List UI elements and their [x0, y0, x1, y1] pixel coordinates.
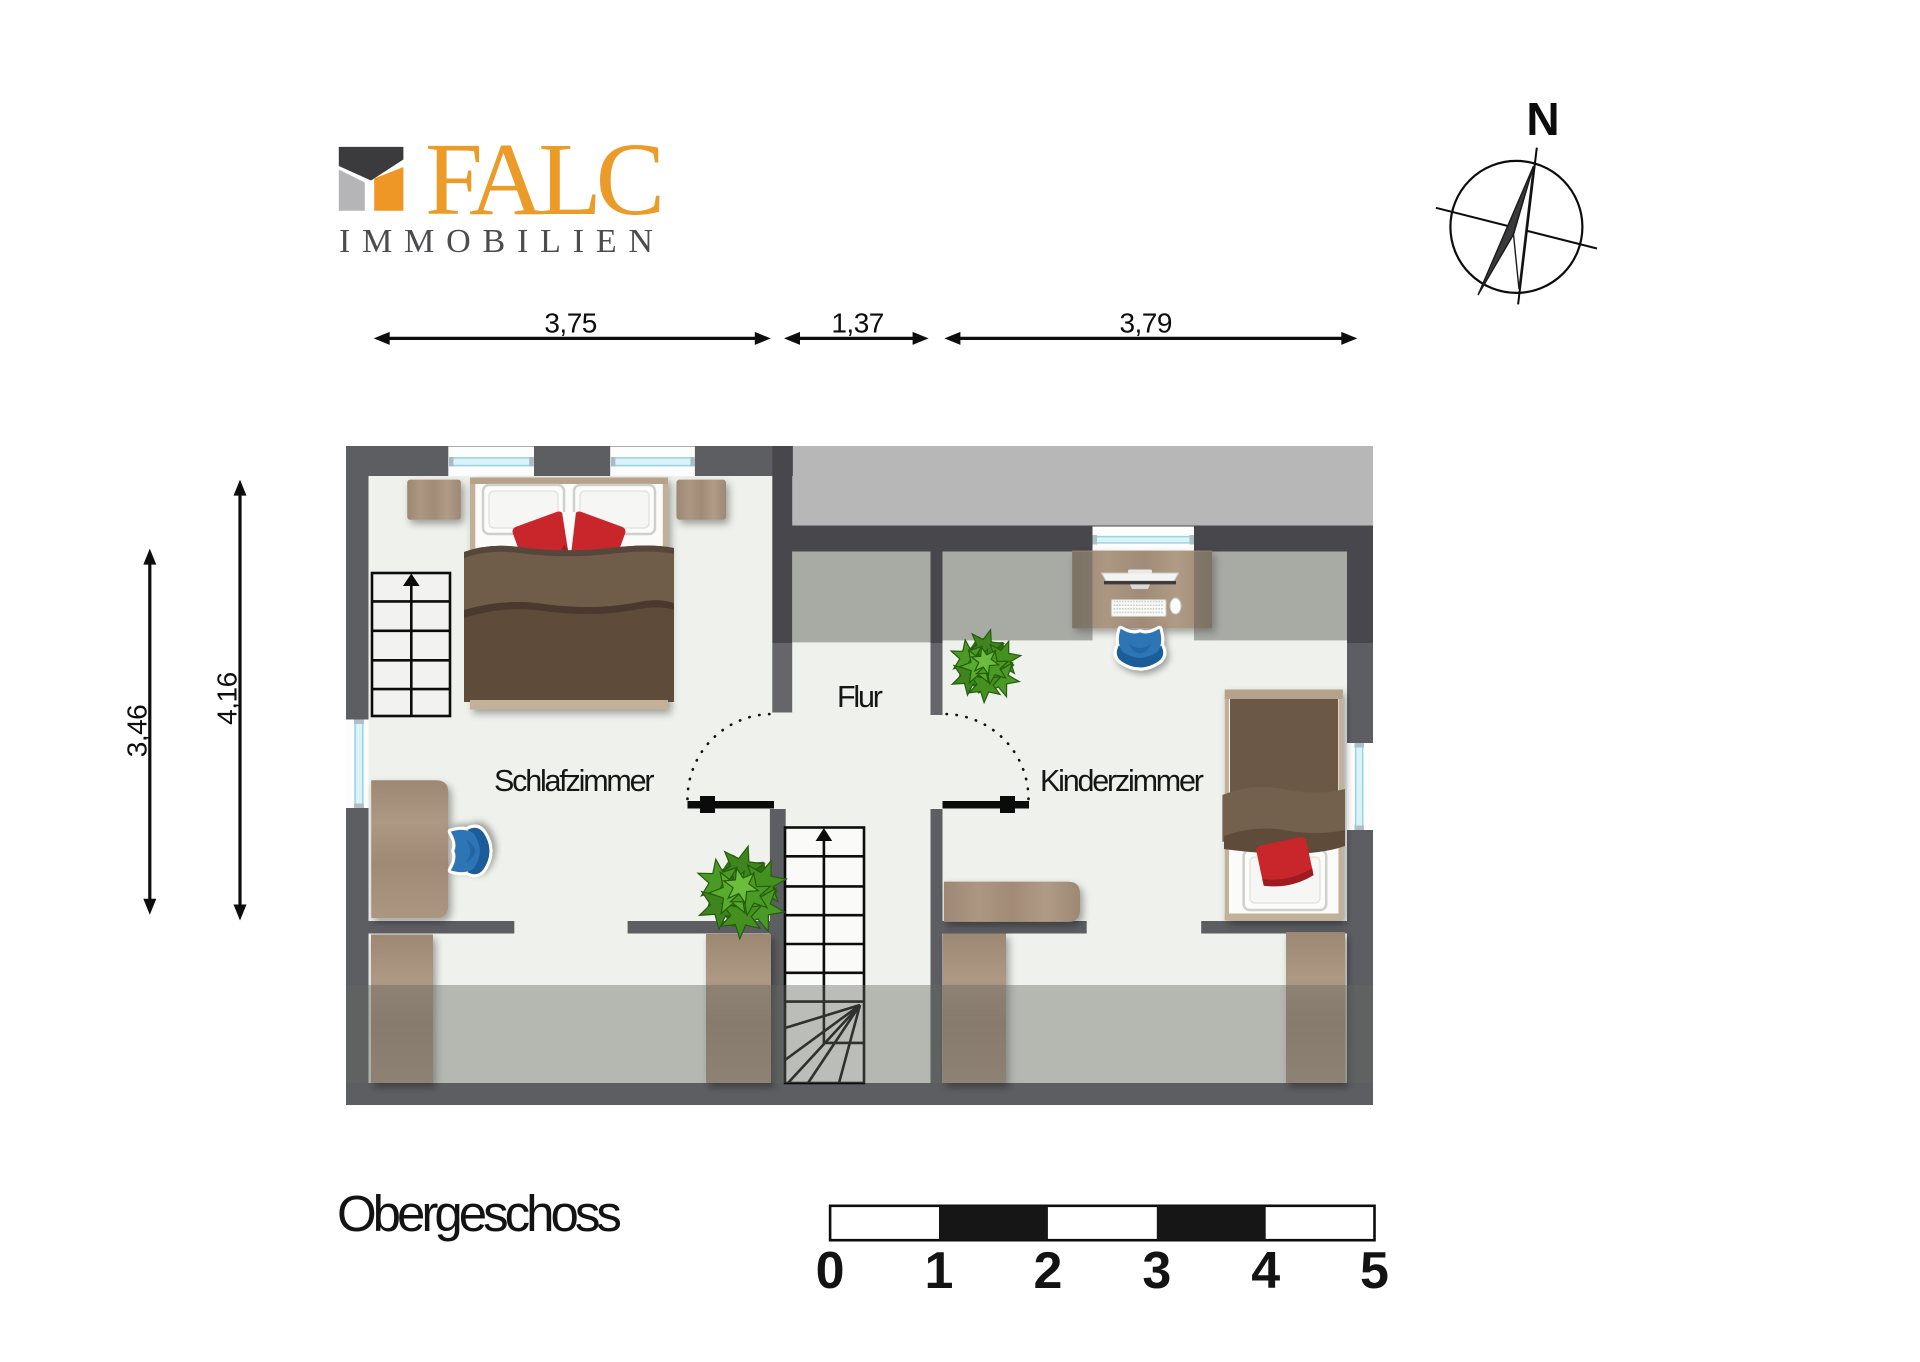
svg-text:4: 4: [1251, 1242, 1280, 1300]
svg-text:1: 1: [925, 1242, 954, 1300]
svg-text:5: 5: [1360, 1242, 1389, 1300]
svg-text:Schlafzimmer: Schlafzimmer: [494, 764, 654, 798]
svg-text:2: 2: [1033, 1242, 1062, 1300]
svg-text:Kinderzimmer: Kinderzimmer: [1040, 764, 1204, 798]
svg-text:3,79: 3,79: [1119, 308, 1172, 339]
svg-text:1,37: 1,37: [831, 308, 884, 339]
svg-text:N: N: [1526, 93, 1559, 145]
svg-text:0: 0: [816, 1242, 845, 1300]
svg-text:Obergeschoss: Obergeschoss: [337, 1185, 620, 1242]
svg-text:IMMOBILIEN: IMMOBILIEN: [339, 223, 665, 260]
svg-text:3,46: 3,46: [122, 705, 153, 758]
svg-text:Flur: Flur: [837, 680, 883, 714]
svg-text:4,16: 4,16: [211, 672, 242, 725]
svg-text:3: 3: [1142, 1242, 1171, 1300]
svg-text:FALC: FALC: [425, 122, 660, 237]
svg-text:3,75: 3,75: [544, 308, 597, 339]
